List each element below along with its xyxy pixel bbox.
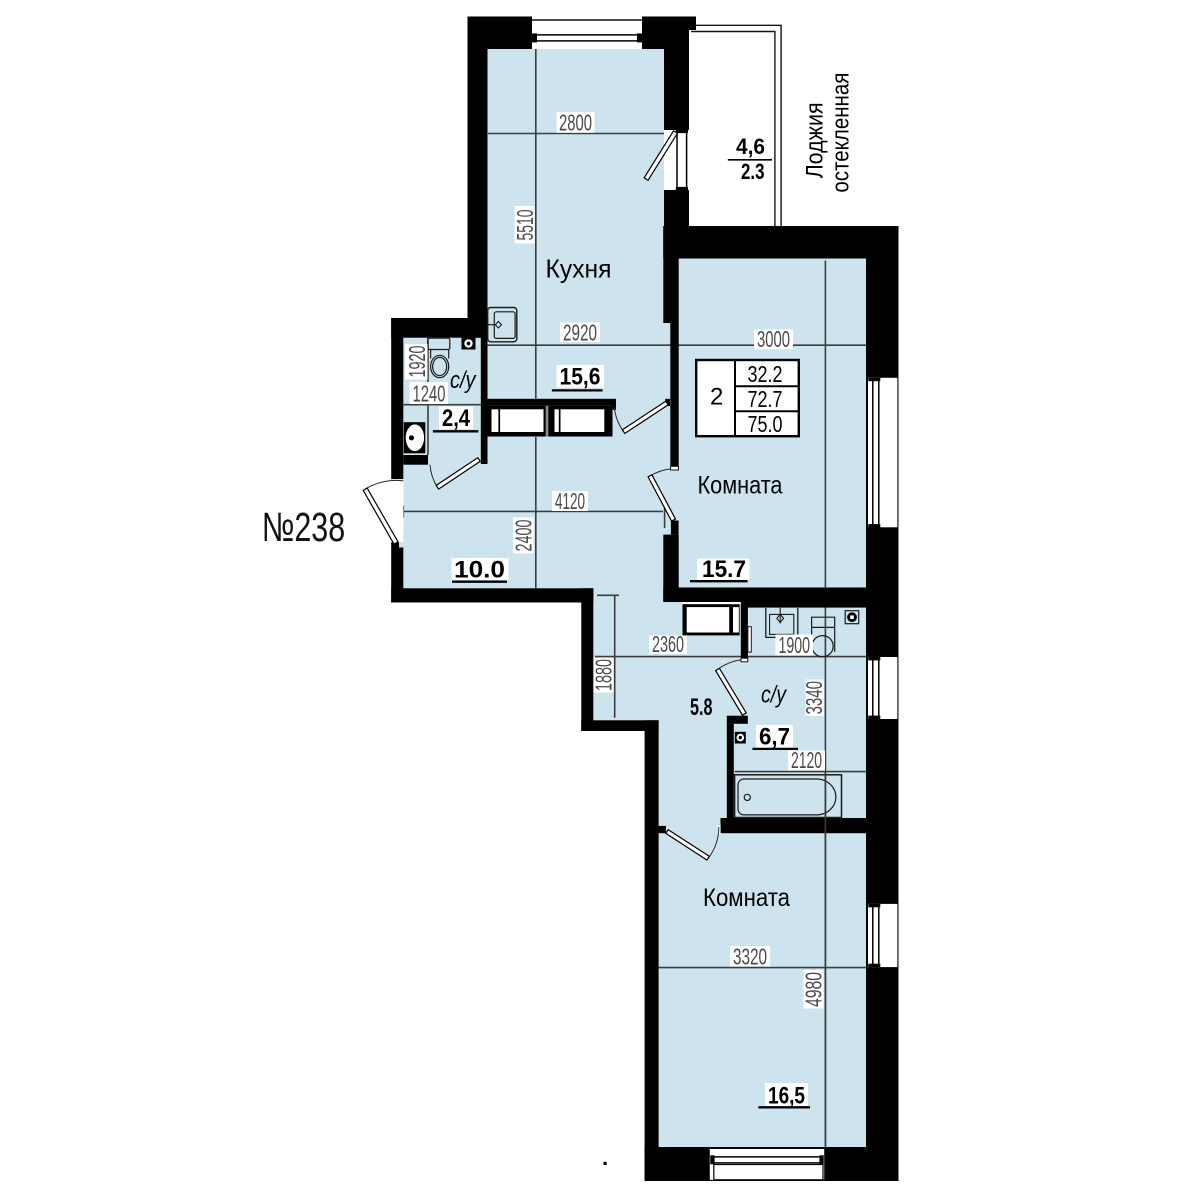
svg-text:15.7: 15.7 bbox=[702, 556, 746, 583]
svg-text:3340: 3340 bbox=[801, 681, 827, 715]
svg-text:2920: 2920 bbox=[563, 320, 597, 346]
svg-text:72.7: 72.7 bbox=[748, 386, 783, 412]
svg-text:3000: 3000 bbox=[757, 326, 790, 352]
svg-text:Кухня: Кухня bbox=[546, 254, 612, 284]
svg-text:2: 2 bbox=[710, 384, 723, 411]
svg-text:2400: 2400 bbox=[511, 520, 537, 552]
svg-text:75.0: 75.0 bbox=[748, 411, 783, 437]
svg-text:с/у: с/у bbox=[761, 682, 788, 709]
svg-text:5.8: 5.8 bbox=[690, 694, 713, 721]
svg-text:4,6: 4,6 bbox=[736, 134, 765, 159]
svg-text:2120: 2120 bbox=[791, 747, 822, 773]
svg-text:остекленная: остекленная bbox=[828, 73, 855, 193]
svg-text:с/у: с/у bbox=[450, 367, 477, 394]
svg-text:15,6: 15,6 bbox=[560, 364, 601, 391]
svg-text:4120: 4120 bbox=[555, 488, 585, 514]
svg-text:4980: 4980 bbox=[801, 972, 827, 1007]
svg-text:1900: 1900 bbox=[779, 632, 811, 658]
svg-text:2.3: 2.3 bbox=[741, 159, 765, 184]
svg-text:№238: №238 bbox=[262, 504, 346, 550]
svg-text:3320: 3320 bbox=[733, 944, 767, 970]
svg-text:2360: 2360 bbox=[652, 631, 684, 657]
svg-text:Лоджия: Лоджия bbox=[802, 102, 829, 178]
svg-text:1240: 1240 bbox=[413, 381, 446, 407]
svg-text:2,4: 2,4 bbox=[442, 405, 471, 432]
svg-text:16,5: 16,5 bbox=[768, 1083, 805, 1110]
svg-text:32.2: 32.2 bbox=[748, 361, 783, 387]
svg-text:Комната: Комната bbox=[703, 884, 790, 912]
svg-text:1880: 1880 bbox=[591, 659, 617, 691]
svg-text:5510: 5510 bbox=[512, 210, 538, 241]
svg-text:10.0: 10.0 bbox=[454, 557, 505, 584]
svg-text:6,7: 6,7 bbox=[759, 724, 790, 751]
svg-text:1920: 1920 bbox=[404, 346, 430, 378]
svg-text:2800: 2800 bbox=[559, 109, 592, 135]
svg-text:Комната: Комната bbox=[698, 472, 783, 500]
